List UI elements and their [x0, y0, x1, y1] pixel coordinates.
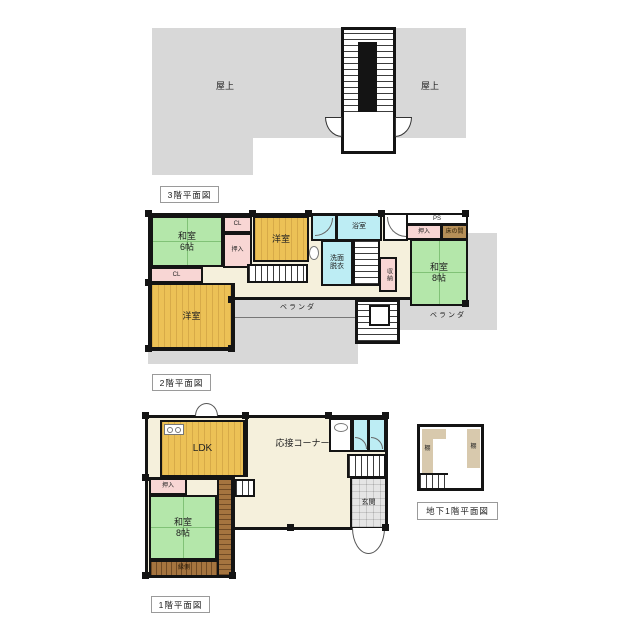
sink-bowl-icon [175, 427, 181, 433]
room-washitsu6: 和室 6帖 [151, 216, 223, 267]
engawa-label: 縁側 [178, 565, 190, 572]
room-label: 6帖 [180, 242, 194, 252]
roof-lower-left-area [148, 350, 235, 364]
stairwell-3f [341, 27, 396, 154]
closet-cl-left: CL [150, 267, 203, 283]
closet-cl-top: CL [223, 216, 252, 233]
room-label: LDK [193, 443, 212, 455]
stairs-basement-access [234, 479, 255, 497]
genkan-entrance: 玄関 [350, 477, 387, 529]
washbasin-icon [309, 246, 319, 260]
corner-post [145, 279, 152, 286]
closet-label: 押入 [162, 483, 174, 490]
engawa-deck-bottom: 縁側 [149, 560, 219, 577]
rooftop-left-label: 屋上 [200, 80, 250, 94]
veranda-rail-line [235, 317, 358, 318]
corner-post [142, 572, 149, 579]
corner-post [249, 210, 256, 217]
corner-post [242, 412, 249, 419]
shelf-left-label: 棚 [422, 443, 433, 455]
room-washitsu8-1f: 和室 8帖 [149, 495, 217, 560]
room-label: 8帖 [432, 273, 446, 283]
washbasin-icon [334, 423, 348, 432]
stairs-2f-mid [353, 239, 380, 286]
basement-title: 地下1階平面図 [417, 502, 498, 520]
room-youshitsu-bottom: 洋室 [150, 283, 233, 349]
room-label: 和室 [178, 231, 196, 241]
wall-segment [245, 418, 248, 477]
closet-label: 収納 [385, 268, 392, 282]
basement-room: 棚 棚 [417, 424, 484, 491]
corner-post [305, 210, 312, 217]
closet-label: 押入 [418, 229, 430, 236]
stairwell-2f-up [355, 299, 400, 344]
room-ldk: LDK [160, 420, 245, 477]
corner-post [228, 345, 235, 352]
corner-post [229, 572, 236, 579]
floor3-title: 3階平面図 [160, 186, 219, 203]
room-toilet-2f [311, 214, 337, 241]
veranda-bottom-label: ベランダ [248, 301, 348, 314]
room-label: 洋室 [182, 311, 200, 321]
room-bathroom: 浴室 [336, 214, 382, 241]
room-label: 和室 [174, 517, 192, 527]
engawa-deck-vertical [217, 478, 233, 577]
corner-post [145, 345, 152, 352]
stairwell-core [358, 42, 377, 112]
floorplan-canvas: 屋上 屋上 3階平面図 和室 6帖 CL 押入 洋室 [0, 0, 640, 640]
room-label: 洋室 [272, 234, 290, 244]
door-arc [355, 437, 367, 449]
stair-landing [344, 112, 393, 151]
stairs-2f-hall [247, 264, 308, 283]
corner-post [228, 296, 235, 303]
stairs-basement [420, 473, 448, 488]
closet-shunou: 収納 [379, 257, 397, 292]
door-arc [371, 437, 383, 449]
veranda-right-label: ベランダ [408, 309, 488, 322]
room-senmen-datsui: 洗面 脱衣 [321, 240, 353, 286]
entrance-door-arc [352, 528, 385, 554]
closet-oshiire-right: 押入 [406, 224, 442, 240]
room-washitsu8-2f: 和室 8帖 [410, 239, 468, 306]
room-label: 玄関 [362, 499, 376, 507]
tokonoma-label: 床の間 [445, 229, 463, 236]
ldk-exterior-door-arc [195, 403, 218, 416]
hall-nook-2f [383, 213, 408, 241]
closet-label: CL [234, 221, 242, 228]
stairs-1f [347, 454, 386, 478]
corner-post [462, 300, 469, 307]
closet-oshiire-1f: 押入 [149, 478, 187, 495]
room-label: 浴室 [352, 223, 366, 231]
rooftop-area-left [152, 138, 253, 175]
corner-post [142, 412, 149, 419]
ps-label: PS [433, 216, 441, 223]
room-toilet-a [352, 418, 369, 452]
corner-post [145, 210, 152, 217]
room-toilet-b [368, 418, 386, 452]
closet-label: 押入 [231, 247, 243, 254]
floor1-title: 1階平面図 [151, 596, 210, 613]
floor2-title: 2階平面図 [152, 374, 211, 391]
door-arc [315, 218, 333, 236]
closet-label: CL [173, 272, 181, 279]
shelf-right-label: 棚 [467, 441, 480, 453]
rooftop-right-label: 屋上 [405, 80, 455, 94]
room-label: 洗面 [330, 255, 344, 263]
corner-post [382, 524, 389, 531]
sink-bowl-icon [167, 427, 173, 433]
corner-post [325, 412, 332, 419]
kitchen-sink-icon [164, 424, 184, 435]
corner-post [382, 412, 389, 419]
stairwell-core [369, 305, 390, 326]
corner-post [142, 474, 149, 481]
corner-post [462, 210, 469, 217]
door-arc [387, 217, 406, 237]
corner-post [287, 524, 294, 531]
room-label: 脱衣 [330, 263, 344, 271]
corner-post [378, 210, 385, 217]
tokonoma-alcove: 床の間 [441, 224, 468, 240]
room-label: 8帖 [176, 528, 190, 538]
room-label: 和室 [430, 262, 448, 272]
room-washroom-1f [329, 418, 352, 452]
room-youshitsu-top: 洋室 [253, 216, 309, 262]
closet-oshiire-left: 押入 [223, 233, 252, 268]
